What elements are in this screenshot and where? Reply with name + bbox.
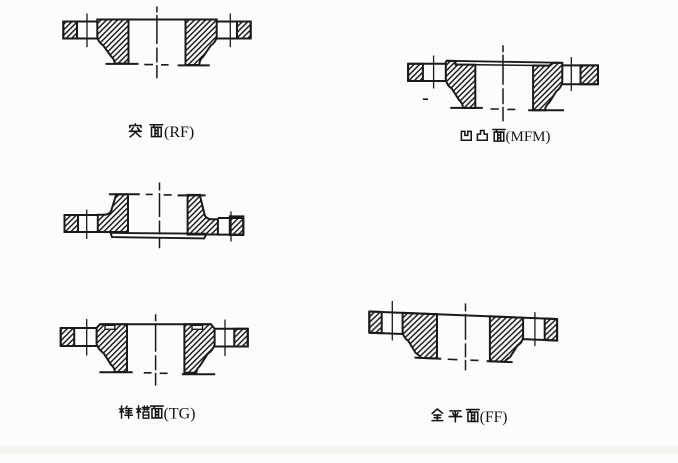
svg-text:(FF): (FF) [480, 409, 508, 426]
svg-text:(MFM): (MFM) [506, 129, 551, 145]
svg-text:(TG): (TG) [164, 406, 196, 423]
svg-text:(RF): (RF) [164, 124, 194, 141]
